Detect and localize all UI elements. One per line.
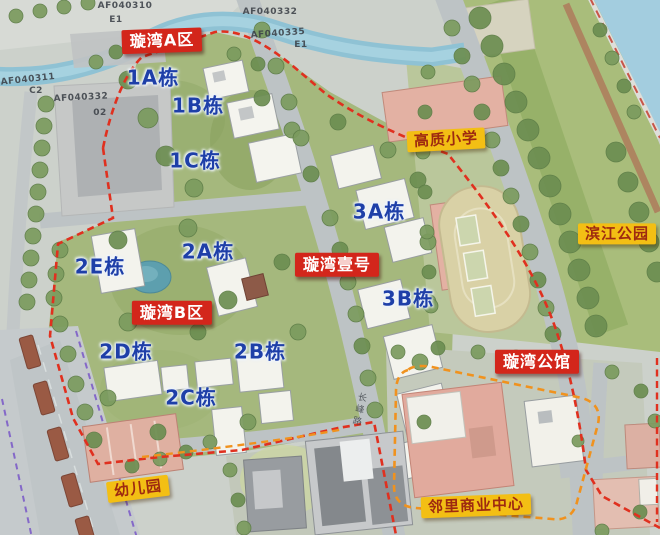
tree-canopy (505, 91, 527, 113)
tree-canopy (593, 23, 607, 37)
tree-canopy (627, 105, 641, 119)
tree-canopy (348, 306, 364, 322)
tree-canopy (179, 219, 197, 237)
tree-canopy (444, 20, 460, 36)
tree-canopy (203, 435, 217, 449)
parcel-code-af040332-ne: AF040332 (243, 7, 298, 17)
tree-canopy (77, 404, 93, 420)
tree-canopy (34, 140, 50, 156)
tree-canopy (33, 4, 47, 18)
tree-canopy (464, 76, 480, 92)
tree-canopy (138, 108, 158, 128)
tree-canopy (231, 493, 245, 507)
tree-canopy (60, 346, 76, 362)
tree-canopy (32, 162, 48, 178)
tree-canopy (322, 210, 338, 226)
parcel-subcode-e1-stream: E1 (294, 40, 307, 50)
label-building-2e: 2E栋 (75, 256, 126, 279)
tree-canopy (522, 244, 538, 260)
tree-canopy (89, 55, 103, 69)
label-riverside-park: 滨江公园 (578, 223, 656, 244)
tree-canopy (237, 521, 251, 535)
tree-canopy (493, 63, 515, 85)
tree-canopy (454, 48, 470, 64)
tree-canopy (422, 265, 436, 279)
tree-canopy (100, 390, 116, 406)
tree-canopy (57, 0, 71, 14)
tree-canopy (330, 114, 346, 130)
tree-canopy (503, 188, 519, 204)
label-building-2d: 2D栋 (99, 341, 153, 364)
tree-canopy (268, 58, 284, 74)
label-building-2c: 2C栋 (165, 387, 217, 410)
tree-canopy (274, 254, 290, 270)
tree-canopy (417, 415, 431, 429)
label-building-1c: 1C栋 (169, 150, 221, 173)
tree-canopy (227, 47, 241, 61)
label-building-3b: 3B栋 (382, 288, 434, 311)
label-commercial-center: 邻里商业中心 (421, 493, 532, 518)
tree-canopy (21, 272, 37, 288)
tree-canopy (585, 315, 607, 337)
parcel-code-af040310: AF040310 (98, 1, 153, 11)
label-primary-school: 高质小学 (406, 127, 485, 152)
tree-canopy (254, 90, 270, 106)
tree-canopy (513, 216, 529, 232)
tree-canopy (109, 45, 123, 59)
tree-canopy (418, 105, 432, 119)
tree-canopy (19, 294, 35, 310)
tree-canopy (606, 142, 626, 162)
tree-canopy (549, 203, 571, 225)
tree-canopy (605, 51, 619, 65)
tree-canopy (36, 118, 52, 134)
tree-canopy (380, 142, 396, 158)
label-building-1b: 1B栋 (172, 95, 224, 118)
label-zone-a: 璇湾A区 (121, 27, 202, 54)
tree-canopy (605, 365, 619, 379)
tree-canopy (281, 94, 297, 110)
label-xuanwan-yihao: 璇湾壹号 (295, 253, 379, 277)
tree-canopy (28, 206, 44, 222)
tree-canopy (9, 9, 23, 23)
tree-canopy (367, 402, 383, 418)
tree-canopy (568, 259, 590, 281)
tree-canopy (471, 345, 485, 359)
tree-canopy (38, 96, 54, 112)
label-building-1a: 1A栋 (127, 67, 179, 90)
tree-canopy (634, 384, 648, 398)
label-building-2a: 2A栋 (182, 241, 234, 264)
tree-canopy (354, 338, 370, 354)
tree-canopy (185, 179, 203, 197)
tree-canopy (109, 231, 127, 249)
tree-canopy (493, 160, 509, 176)
site-plan-map: 璇湾A区 璇湾B区 璇湾壹号 璇湾公馆 高质小学 滨江公园 幼儿园 邻里商业中心… (0, 0, 660, 535)
tree-canopy (23, 250, 39, 266)
tree-canopy (420, 225, 434, 239)
tree-canopy (418, 185, 432, 199)
tree-canopy (617, 79, 631, 93)
tree-canopy (539, 175, 561, 197)
tree-canopy (595, 524, 609, 535)
tree-canopy (290, 324, 306, 340)
tree-canopy (431, 341, 445, 355)
tree-canopy (150, 424, 166, 440)
parcel-subcode-e1-north: E1 (109, 15, 122, 25)
tree-canopy (391, 345, 405, 359)
parcel-subcode-02: 02 (93, 108, 107, 118)
tree-canopy (223, 463, 237, 477)
tree-canopy (469, 7, 491, 29)
tree-canopy (360, 370, 376, 386)
tree-canopy (68, 376, 84, 392)
tree-canopy (577, 287, 599, 309)
tree-canopy (618, 172, 638, 192)
tree-canopy (52, 316, 68, 332)
tree-canopy (86, 432, 102, 448)
tree-canopy (219, 291, 237, 309)
tree-canopy (629, 202, 649, 222)
tree-canopy (251, 57, 265, 71)
tree-canopy (190, 324, 206, 340)
label-building-2b: 2B栋 (234, 341, 286, 364)
tree-canopy (25, 228, 41, 244)
tree-canopy (484, 132, 500, 148)
tree-canopy (481, 35, 503, 57)
tree-canopy (517, 119, 539, 141)
tree-canopy (303, 166, 319, 182)
tree-canopy (421, 65, 435, 79)
tree-canopy (30, 184, 46, 200)
label-zone-b: 璇湾B区 (132, 301, 212, 325)
tree-canopy (474, 104, 490, 120)
label-building-3a: 3A栋 (353, 201, 405, 224)
tree-canopy (293, 130, 309, 146)
tree-canopy (528, 147, 550, 169)
label-xuanwan-gongguan: 璇湾公馆 (495, 350, 579, 374)
tree-canopy (240, 414, 256, 430)
tree-canopy (81, 0, 95, 10)
parcel-subcode-c2: C2 (29, 86, 43, 96)
